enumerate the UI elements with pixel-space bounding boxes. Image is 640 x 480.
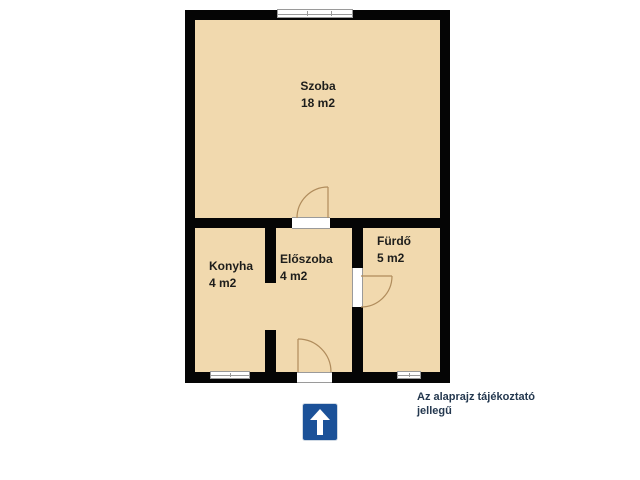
window-bottom-right bbox=[397, 371, 421, 379]
disclaimer-text: Az alaprajz tájékoztató jellegű bbox=[417, 390, 535, 418]
window-glass-line bbox=[278, 14, 352, 15]
window-divider bbox=[331, 11, 332, 16]
room-label-furdo: Fürdő 5 m2 bbox=[377, 233, 411, 267]
wall-furdo-lower bbox=[352, 307, 363, 372]
wall-konyha-lower bbox=[265, 330, 276, 372]
room-area: 4 m2 bbox=[209, 275, 253, 292]
window-top bbox=[277, 9, 353, 18]
room-label-szoba: Szoba 18 m2 bbox=[258, 78, 378, 112]
disclaimer-line1: Az alaprajz tájékoztató bbox=[417, 390, 535, 404]
room-name: Szoba bbox=[258, 78, 378, 95]
room-area: 4 m2 bbox=[280, 268, 333, 285]
room-name: Előszoba bbox=[280, 251, 333, 268]
wall-konyha-upper bbox=[265, 228, 276, 283]
room-area: 5 m2 bbox=[377, 250, 411, 267]
window-divider bbox=[307, 11, 308, 16]
window-bottom-left bbox=[210, 371, 250, 379]
doorway-szoba bbox=[292, 217, 330, 229]
wall-furdo-upper bbox=[352, 228, 363, 268]
wall-left bbox=[185, 10, 195, 383]
doorway-furdo bbox=[352, 268, 363, 307]
doorway-entrance bbox=[297, 372, 332, 383]
window-divider bbox=[409, 373, 410, 377]
room-label-eloszoba: Előszoba 4 m2 bbox=[280, 251, 333, 285]
room-name: Fürdő bbox=[377, 233, 411, 250]
room-area: 18 m2 bbox=[258, 95, 378, 112]
floor-area bbox=[188, 13, 447, 379]
floorplan-image: Szoba 18 m2 Konyha 4 m2 Előszoba 4 m2 Fü… bbox=[0, 0, 640, 480]
disclaimer-line2: jellegű bbox=[417, 404, 535, 418]
wall-right bbox=[440, 10, 450, 383]
up-arrow-icon bbox=[307, 408, 333, 436]
room-name: Konyha bbox=[209, 258, 253, 275]
north-arrow-sign bbox=[302, 403, 338, 441]
room-label-konyha: Konyha 4 m2 bbox=[209, 258, 253, 292]
window-divider bbox=[230, 373, 231, 377]
